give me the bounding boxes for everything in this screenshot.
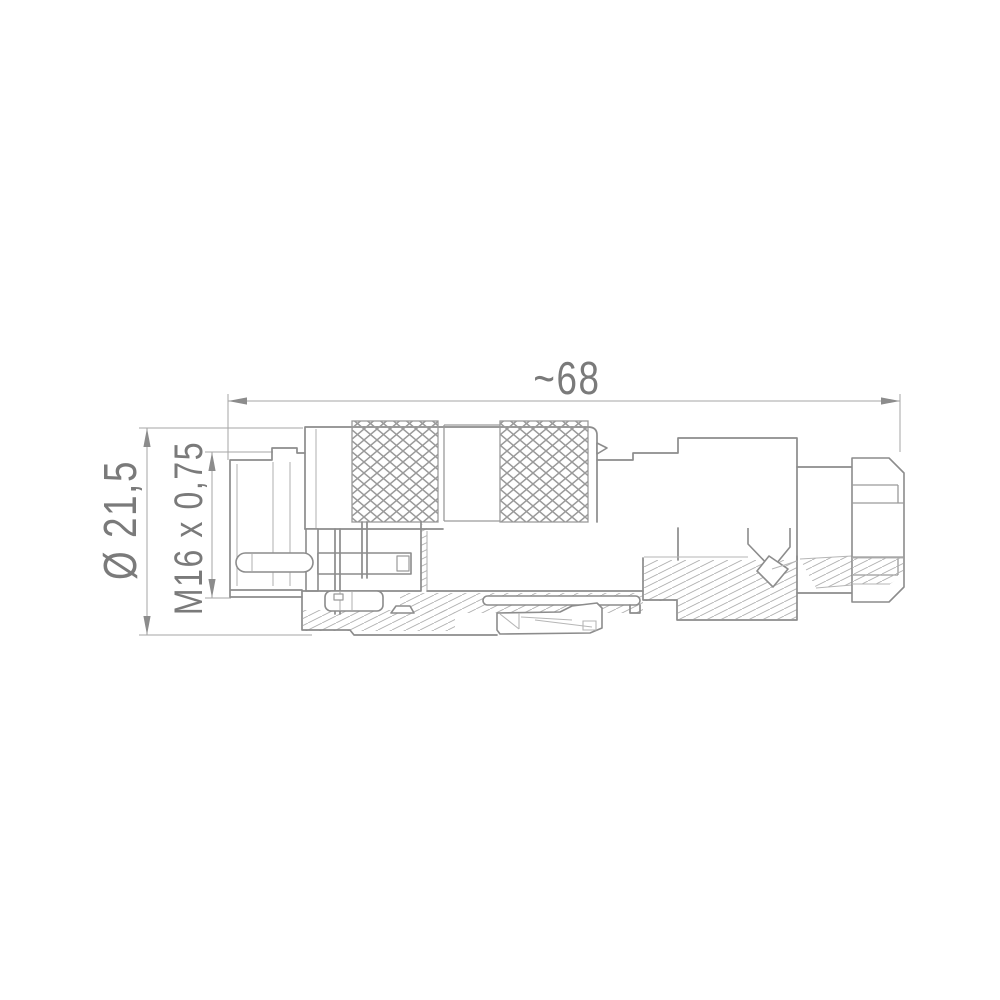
arrowhead-down [143,616,150,635]
latch-detail [597,443,607,454]
connector-drawing [230,421,904,635]
hatch-wall-strip [421,524,427,591]
technical-drawing: ~68 Ø 21,5 M16 x 0,75 [0,0,1000,1000]
knurl-section-front [352,421,438,522]
contact-pin-front [236,553,313,572]
arrowhead-right [881,397,900,404]
flange-clip [334,594,343,600]
spring-slot [483,596,640,605]
dim-thread-label: M16 x 0,75 [166,441,211,615]
hatch-neck [800,556,852,588]
knurl-section-rear [500,421,588,522]
dim-diameter-label: Ø 21,5 [94,460,146,580]
dim-length-label: ~68 [533,352,600,404]
solder-cup [397,556,409,571]
dim-thread: M16 x 0,75 [166,441,273,615]
drawing-canvas: ~68 Ø 21,5 M16 x 0,75 [0,0,1000,1000]
key-bump [391,606,414,613]
arrowhead-left [228,397,247,404]
front-shell [230,448,305,597]
hatch-lower-left [303,610,455,631]
coupling-ring [305,421,607,529]
hatch-nut-section [852,558,903,584]
arrowhead-up [143,428,150,447]
cable-gland-nut [852,458,904,602]
